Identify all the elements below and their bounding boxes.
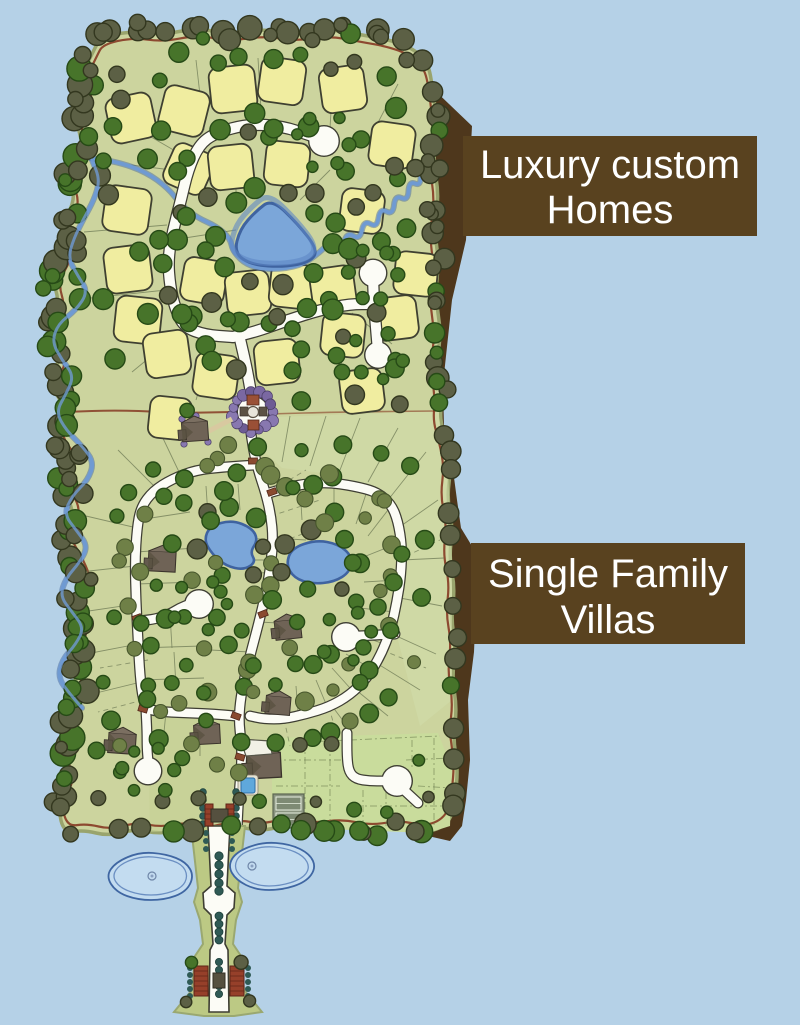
svg-text:Luxury custom: Luxury custom [480,143,740,187]
svg-text:Single Family: Single Family [488,552,728,596]
svg-text:Villas: Villas [561,598,656,642]
svg-text:Homes: Homes [547,188,674,232]
